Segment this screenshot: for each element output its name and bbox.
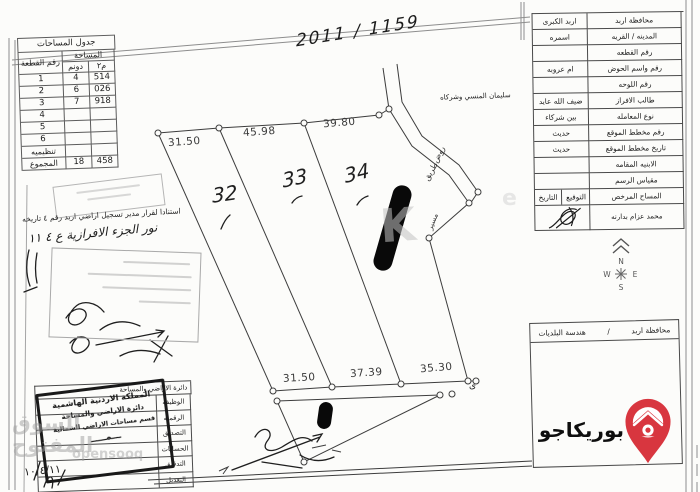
compass-rose: N W E S (601, 236, 641, 298)
form-value: حديث (534, 125, 589, 142)
form-value: اربد الكبرى (532, 13, 587, 30)
form-value (533, 45, 588, 62)
form-value (535, 157, 590, 174)
dunum-cell: 4 (63, 72, 89, 85)
signature-column-label: التوقيع (562, 189, 590, 204)
signature-date-subheader: التاريخ التوقيع (535, 189, 590, 206)
total-m2: 458 (92, 156, 118, 169)
compass-south-label: S (619, 283, 624, 292)
form-value: حديث (534, 141, 589, 158)
dimension-label-top: 31.50 (168, 135, 201, 149)
surveyor-name: محمد عزام بدارنه (590, 204, 684, 230)
form-value: بين شركاء (534, 109, 589, 126)
faint-stamp-box-large (48, 247, 201, 342)
governorate-label: محافظة اربد (631, 325, 670, 335)
compass-east-label: E (633, 270, 638, 279)
compass-north-label: N (618, 257, 624, 266)
logo-wordmark: بوريكاجو (534, 418, 624, 442)
m2-cell: 514 (89, 72, 115, 85)
dunum-cell: 6 (64, 84, 90, 97)
form-label: طالب الافراز (589, 92, 683, 109)
form-label: رقم واسم الحوض (588, 60, 682, 77)
form-label: رقم اللوحه (588, 76, 682, 93)
dimension-label-top: 45.98 (243, 125, 276, 139)
total-dunum: 18 (66, 156, 92, 169)
row-label-total: المجموع (22, 157, 66, 171)
form-label: الابنيه المقامه (590, 156, 684, 173)
form-label: المساح المرخص (590, 188, 684, 205)
home-pin-icon (622, 397, 674, 465)
dimension-label-bottom: 37.39 (350, 366, 383, 380)
form-label: مقياس الرسم (590, 172, 684, 189)
m2-cell: 918 (90, 96, 116, 109)
date-column-label: التاريخ (535, 190, 562, 205)
form-label: رقم القطعه (588, 44, 682, 61)
compass-rose-graphic: N W E S (601, 236, 641, 294)
form-value: اسمره (533, 29, 588, 46)
form-label: رقم مخطط الموقع (589, 124, 683, 141)
processing-row-label: التعديل (159, 472, 194, 489)
logo-map-pin (622, 397, 674, 469)
north-chevron-icon (613, 239, 629, 246)
dimension-label-bottom: 31.50 (283, 371, 316, 385)
form-label: محافظة اربد (587, 12, 681, 29)
corner-note: ى (469, 381, 476, 391)
surveyor-signature-scribble (536, 205, 589, 230)
surveyor-signature-cell (535, 205, 590, 231)
areas-table: جدول المساحات رقم القطعة المساحة دونم م٢… (17, 35, 120, 171)
column-header-plot-number: رقم القطعة (19, 51, 64, 75)
separator-slash: / (607, 326, 610, 335)
survey-request-form: اربد الكبرىمحافظة اربد اسمرهالمدينه / ال… (531, 11, 686, 231)
dunum-cell: 7 (64, 96, 90, 109)
form-value: ضيف الله عايد (534, 93, 589, 110)
scanned-survey-document: 2011 / 1159 جدول المساحات رقم القطعة الم… (0, 0, 700, 492)
form-label: تاريخ مخطط الموقع (589, 140, 683, 157)
form-label: المدينه / القريه (588, 28, 682, 45)
compass-star-icon (615, 268, 627, 280)
m2-cell: 026 (90, 84, 116, 97)
municipal-engineering-label: هندسة البلديات (538, 327, 586, 337)
compass-west-label: W (603, 270, 611, 279)
form-value: ام عروبه (533, 61, 588, 78)
form-value (535, 173, 590, 190)
parcel-number-32: 32 (212, 180, 238, 208)
form-value (533, 77, 588, 94)
form-label: نوع المعامله (589, 108, 683, 125)
